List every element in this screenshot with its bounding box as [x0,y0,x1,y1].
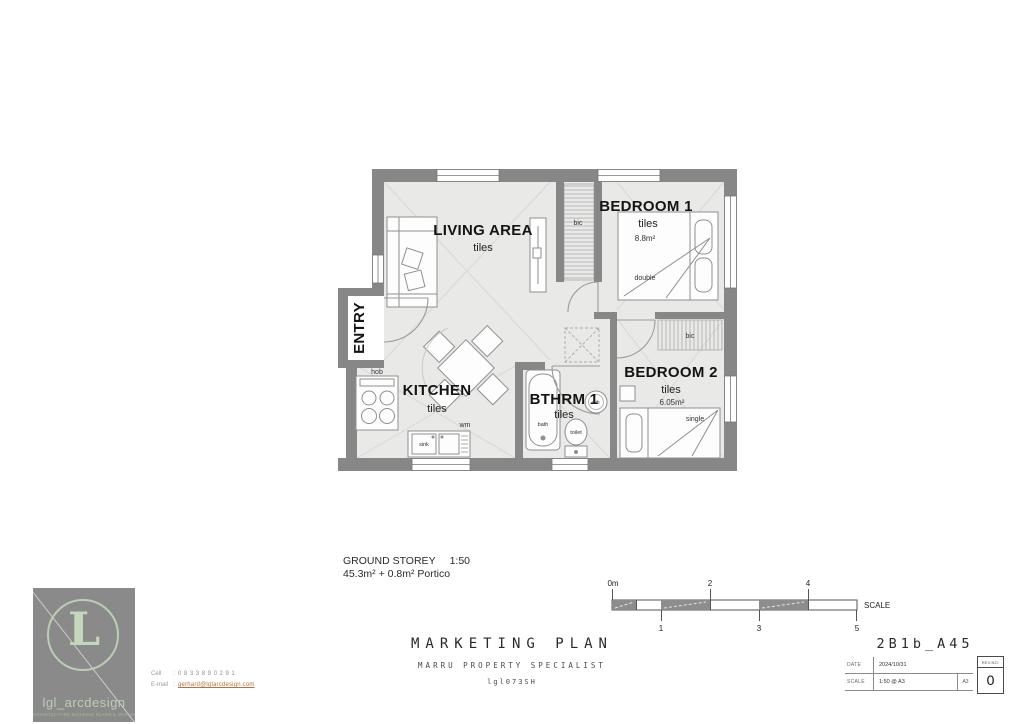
bedroom2-tiles-label: tiles [661,384,681,396]
sheet-info-table: DATE 2024/10/31 SCALE 1:50 @ A3 A3 [845,657,973,691]
hob-label: hob [371,369,383,376]
bedroom1-label: BEDROOM 1 [599,198,693,215]
company-logo: L lgl_arcdesign ARCHITECTURE BUILDING PL… [33,588,135,722]
sofa [387,217,437,307]
bathroom-tiles-label: tiles [554,409,574,421]
scale-tick-2: 2 [708,579,713,588]
bedroom1-bed-label: double [634,275,655,282]
sink-label: sink [419,442,429,448]
drawing-title: MARKETING PLAN [362,636,662,652]
logo-monogram: L [33,606,135,652]
hob [356,376,398,430]
plan-caption-areas: 45.3m² + 0.8m² Portico [343,568,470,581]
bathroom-label: BTHRM 1 [530,391,599,408]
email-row: E-mail : gerhard@lglarcdesign.com [151,680,255,691]
living-area-label: LIVING AREA [433,222,532,239]
scale-tick-4: 4 [806,579,811,588]
email-link[interactable]: gerhard@lglarcdesign.com [178,680,255,691]
scale-tick-1: 1 [659,624,664,633]
scale-bar-label: SCALE [864,601,890,610]
contact-block: Cell : 0833890291 E-mail : gerhard@lglar… [151,669,255,691]
bath-label: bath [538,422,549,428]
logo-company-name: lgl_arcdesign [33,695,135,710]
paper-size: A3 [957,674,973,690]
scale-tick-3: 3 [757,624,762,633]
wm-label: wm [459,422,471,429]
sink-counter [408,431,470,457]
revision-box: REV.NO. 0 [977,656,1004,694]
table-row: DATE 2024/10/31 [845,657,973,674]
bedroom2-bed-label: single [686,416,704,423]
living-tiles-label: tiles [473,242,493,254]
toilet-label: toilet [570,430,582,436]
title-block: MARKETING PLAN MARRU PROPERTY SPECIALIST… [362,636,662,686]
table-row: SCALE 1:50 @ A3 A3 [845,674,973,691]
double-bed [618,212,718,300]
bedroom2-label: BEDROOM 2 [624,364,718,381]
scale-tick-0m: 0m [607,579,618,588]
kitchen-tiles-label: tiles [427,403,447,415]
date-label: DATE [845,657,874,673]
email-label: E-mail [151,680,170,691]
scale-bar: 0m 2 4 1 3 5 SCALE [607,579,890,633]
drawing-subtitle: MARRU PROPERTY SPECIALIST [362,661,662,670]
bedroom1-area-label: 8.8m² [635,234,656,243]
toilet [565,419,587,457]
plan-caption: GROUND STOREY1:50 45.3m² + 0.8m² Portico [343,555,470,581]
bedroom1-bic-label: bic [574,220,583,227]
storey-label: GROUND STOREY [343,555,436,567]
scale-label: SCALE [845,674,874,690]
revision-label: REV.NO. [978,657,1003,668]
bedroom2-area-label: 6.05m² [660,398,685,407]
sheet-page: LIVING AREA tiles BEDROOM 1 tiles 8.8m² … [0,0,1024,724]
bedroom2-bic-label: bic [686,333,695,340]
drawing-code: lgl073SH [362,678,662,686]
sheet-number: 2B1b_A45 [859,636,991,652]
cell-label: Cell [151,669,170,680]
revision-value: 0 [978,668,1003,692]
storey-scale: 1:50 [450,555,470,567]
cell-number: 0833890291 [178,669,237,680]
entry-label: ENTRY [351,302,368,354]
kitchen-label: KITCHEN [403,382,472,399]
wb-label: wb [591,400,599,406]
scale-tick-5: 5 [855,624,860,633]
date-value: 2024/10/31 [874,657,907,673]
logo-tagline: ARCHITECTURE BUILDING PLANS & DESIGN [33,712,135,717]
bedroom1-tiles-label: tiles [638,218,658,230]
floor-plan-drawing: LIVING AREA tiles BEDROOM 1 tiles 8.8m² … [0,0,1024,724]
scale-value: 1:50 @ A3 [874,674,905,690]
cell-row: Cell : 0833890291 [151,669,255,680]
plan-caption-title: GROUND STOREY1:50 [343,555,470,568]
